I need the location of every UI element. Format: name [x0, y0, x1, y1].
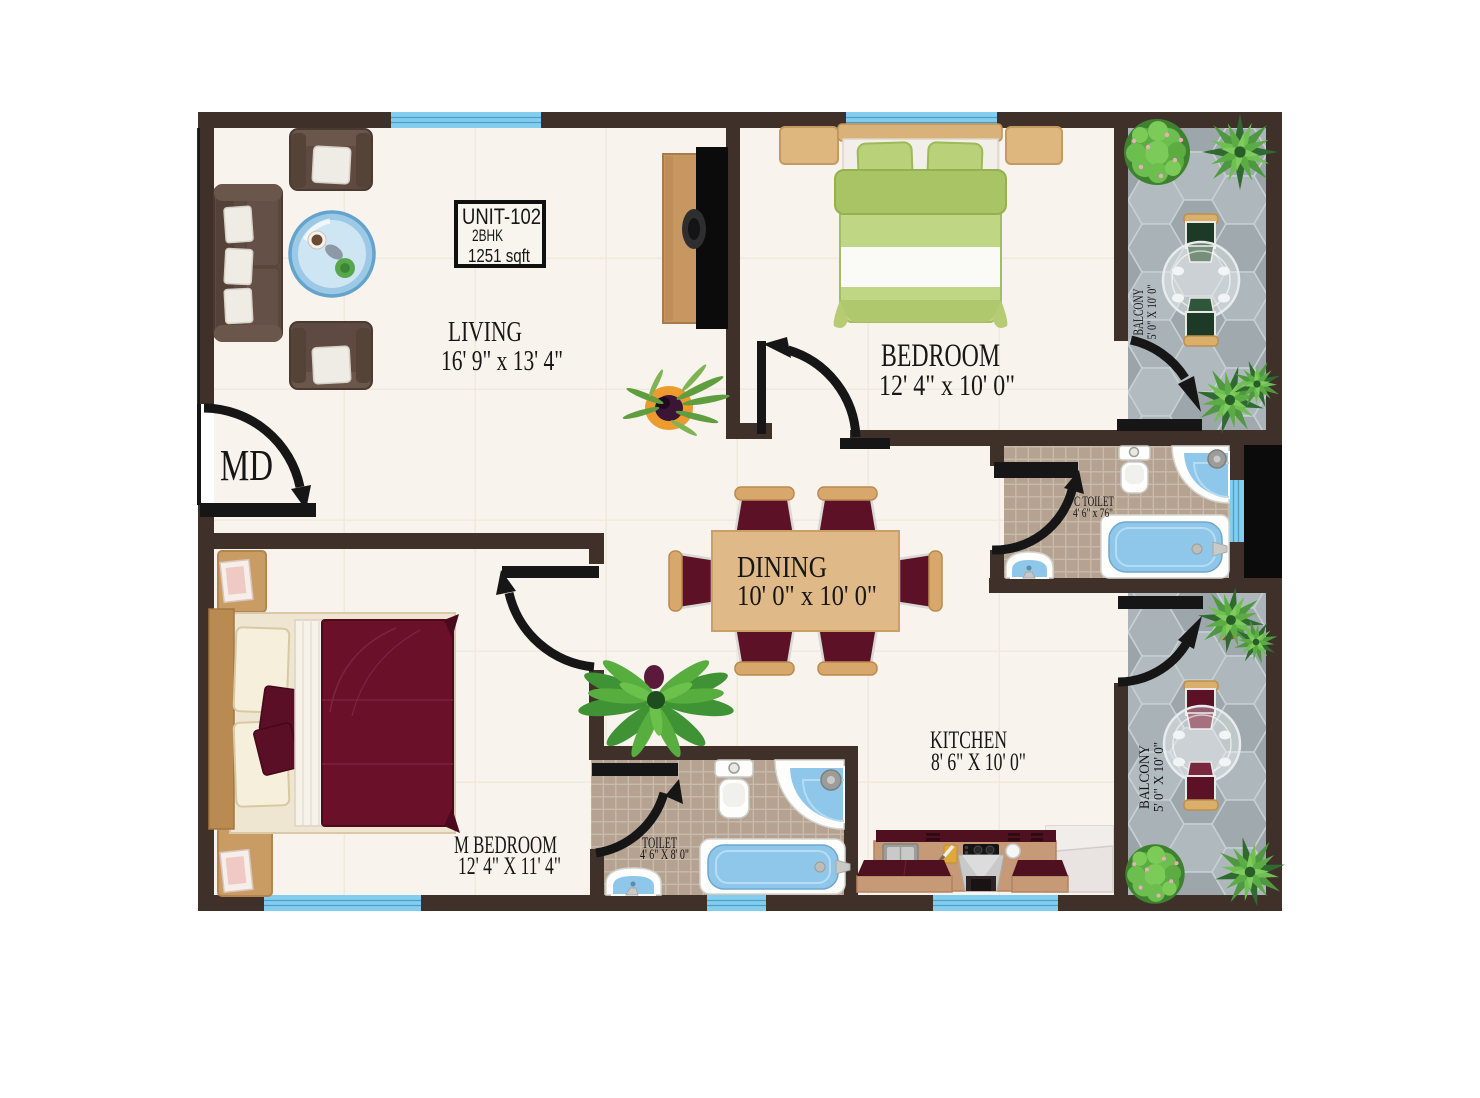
svg-text:5' 0" X 10' 0": 5' 0" X 10' 0" [1144, 285, 1159, 340]
svg-text:MD: MD [220, 441, 273, 490]
svg-text:8' 6" X 10' 0": 8' 6" X 10' 0" [931, 749, 1026, 776]
svg-text:BALCONY: BALCONY [1137, 745, 1153, 809]
svg-text:LIVING: LIVING [448, 316, 522, 348]
svg-text:1251 sqft: 1251 sqft [468, 246, 530, 266]
svg-text:16' 9" x 13' 4": 16' 9" x 13' 4" [441, 346, 563, 377]
svg-text:2BHK: 2BHK [472, 226, 503, 245]
svg-text:4' 6" X 8' 0": 4' 6" X 8' 0" [640, 847, 689, 863]
svg-text:5' 0" X 10' 0": 5' 0" X 10' 0" [1152, 742, 1167, 812]
svg-text:10' 0" x 10' 0": 10' 0" x 10' 0" [737, 580, 877, 612]
svg-text:DINING: DINING [737, 549, 827, 584]
svg-text:12' 4" X 11' 4": 12' 4" X 11' 4" [458, 853, 561, 880]
svg-text:4' 6" x 76": 4' 6" x 76" [1073, 505, 1113, 520]
svg-text:12' 4" x 10' 0": 12' 4" x 10' 0" [879, 369, 1015, 402]
